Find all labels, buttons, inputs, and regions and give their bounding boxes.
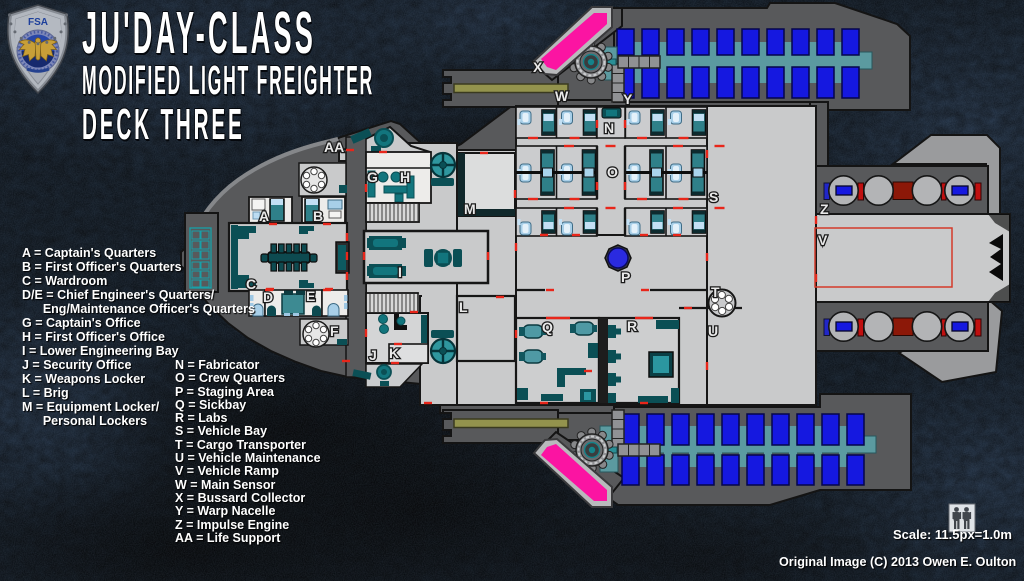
svg-text:W: W bbox=[555, 88, 569, 104]
svg-text:J: J bbox=[369, 347, 377, 363]
svg-text:F: F bbox=[330, 323, 339, 339]
svg-text:O: O bbox=[607, 164, 618, 180]
svg-text:A: A bbox=[259, 208, 269, 224]
svg-text:M: M bbox=[464, 201, 476, 217]
svg-text:U: U bbox=[708, 323, 718, 339]
svg-text:R: R bbox=[627, 318, 637, 334]
svg-text:N: N bbox=[604, 120, 614, 136]
svg-text:D: D bbox=[263, 289, 273, 305]
svg-text:G: G bbox=[367, 169, 378, 185]
svg-text:Y: Y bbox=[623, 91, 633, 107]
svg-text:E: E bbox=[306, 288, 315, 304]
svg-text:H: H bbox=[400, 169, 410, 185]
svg-text:B: B bbox=[313, 208, 323, 224]
svg-text:FSA: FSA bbox=[28, 17, 48, 28]
svg-text:Z: Z bbox=[820, 201, 829, 217]
svg-text:AA: AA bbox=[324, 139, 344, 155]
svg-text:L: L bbox=[459, 299, 468, 315]
svg-text:V: V bbox=[818, 232, 828, 248]
svg-text:I: I bbox=[398, 264, 402, 280]
svg-text:T: T bbox=[711, 284, 720, 300]
svg-text:K: K bbox=[389, 345, 399, 361]
svg-text:S: S bbox=[709, 189, 718, 205]
svg-text:X: X bbox=[533, 59, 543, 75]
svg-text:Q: Q bbox=[542, 319, 553, 335]
svg-text:P: P bbox=[621, 269, 630, 285]
